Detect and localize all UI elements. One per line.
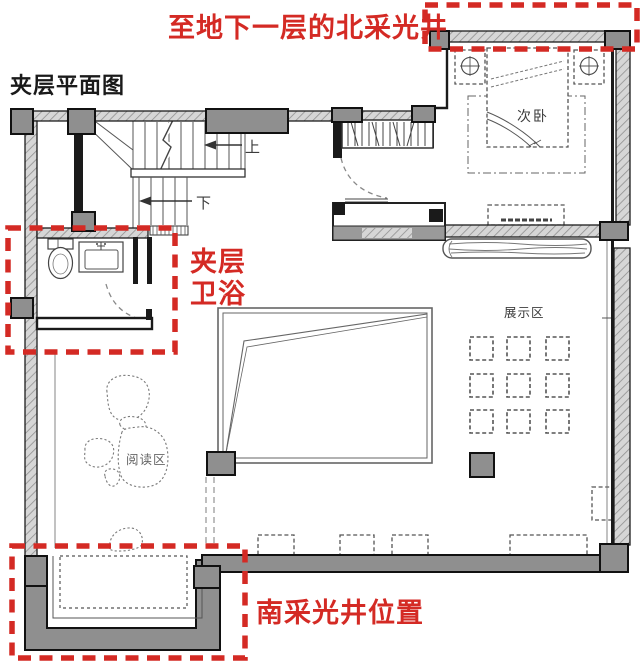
dresser [488,205,564,225]
right-outer-wall [614,248,630,545]
left-outer-wall [25,121,37,556]
void-column [207,452,235,475]
lightwell-inner-line [53,556,202,618]
void-column-dashed-lines [206,477,214,547]
room-label-display-area: 展示区 [504,306,545,320]
stair-arrow-up [204,141,242,150]
display-grid-square [507,374,530,397]
beam [332,108,362,122]
display-grid-square [507,337,530,360]
stairwell-wall [74,121,83,215]
column [25,556,47,586]
right-wall-face [611,42,614,545]
south-lightwell-wall [25,556,220,650]
column [600,222,628,240]
bedroom-bottom-wall [444,225,600,237]
display-grid-square [546,410,569,433]
bathroom-door-arc [106,284,150,321]
nightstand-right [574,50,604,84]
nightstand-left [455,50,485,84]
bedroom-top-wall [448,31,605,42]
floor-plan-svg: 夹层平面图 次卧 展示区 阅读区 上 下 至地下一层的北采光井 夹层 卫浴 南采… [0,0,640,665]
column [68,109,95,134]
display-column [470,453,494,477]
annotation-bath-line1: 夹层 [190,247,246,277]
display-grid [470,337,569,433]
bedroom-left-wall [435,49,447,108]
wood-bench [443,239,591,258]
stair-label-down: 下 [196,195,211,212]
display-grid-square [546,374,569,397]
bath-door-frame [133,237,138,284]
column [11,109,33,134]
column [11,298,33,318]
bedroom-door-arc [341,158,387,198]
bathroom-bottom-wall [37,318,152,329]
void-opening [218,308,432,463]
staircase [85,118,245,235]
bedroom-right-wall [616,42,630,225]
floor-plan-page: 夹层平面图 次卧 展示区 阅读区 上 下 至地下一层的北采光井 夹层 卫浴 南采… [0,0,640,665]
bath-door-frame [147,237,152,284]
room-label-bedroom: 次卧 [517,108,549,124]
beam [206,109,288,133]
display-grid-square [470,410,493,433]
bottom-wall [202,555,602,572]
display-grid-square [470,374,493,397]
display-grid-square [507,410,530,433]
wardrobe [342,120,433,148]
stair-label-up: 上 [245,139,260,156]
annotation-bath-line2: 卫浴 [190,279,246,309]
lightwell-opening [60,556,187,608]
hallway-niche-wall [333,199,445,240]
annotation-north-lightwell: 至地下一层的北采光井 [168,12,448,43]
window-seat-row [258,487,612,555]
stair-arrow-down [139,197,192,206]
display-grid-square [546,337,569,360]
room-label-reading-area: 阅读区 [126,453,167,467]
stair-break-casing [158,118,174,175]
sink [79,242,123,272]
bed [487,48,568,147]
column [600,544,628,572]
bathroom-wall-hook [146,309,152,320]
page-title: 夹层平面图 [10,73,125,98]
column [194,566,220,588]
toilet [48,239,73,279]
annotation-south-lightwell: 南采光井位置 [256,597,424,628]
display-grid-square [470,337,493,360]
stair-landing [131,169,245,177]
column [412,106,435,122]
